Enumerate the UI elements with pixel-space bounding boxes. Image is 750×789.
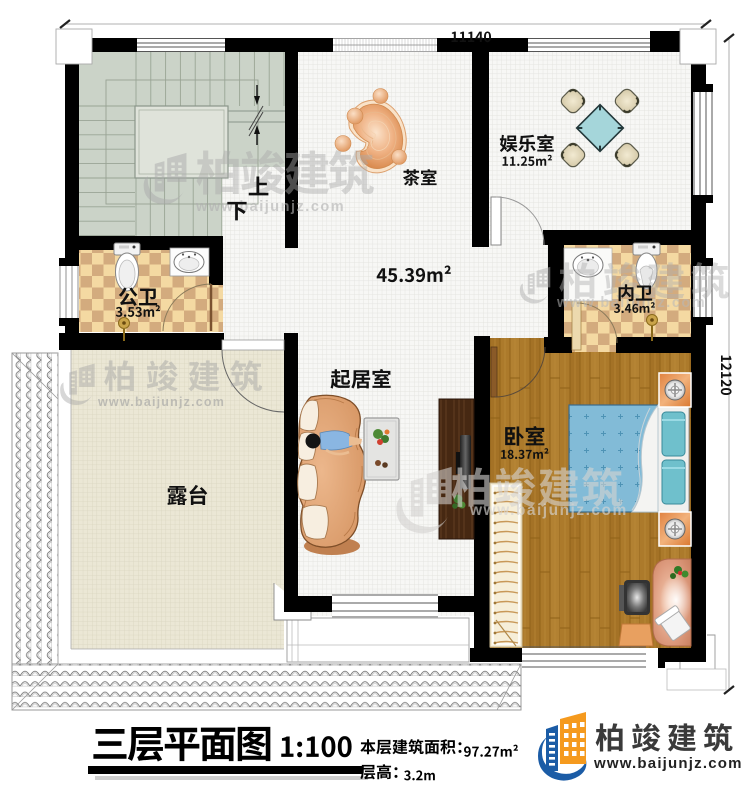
svg-text:www.baijunjz.com: www.baijunjz.com	[195, 199, 345, 215]
svg-text:www.baijunjz.com: www.baijunjz.com	[556, 295, 706, 311]
svg-text:www.baijunjz.com: www.baijunjz.com	[469, 502, 628, 519]
svg-text:www.baijunjz.com: www.baijunjz.com	[97, 395, 225, 409]
svg-text:www.baijunjz.com: www.baijunjz.com	[593, 755, 743, 772]
